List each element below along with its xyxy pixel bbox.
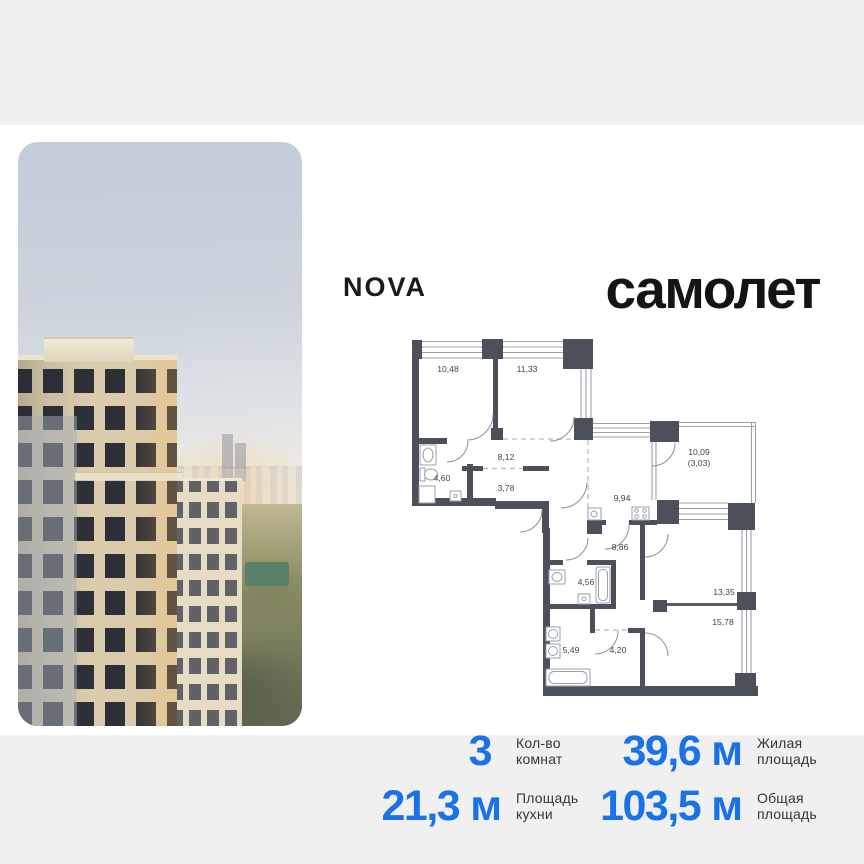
nova-logo: NOVA bbox=[343, 274, 427, 301]
room-area-label: 10,09 bbox=[688, 447, 710, 457]
stat-value: 39,6м bbox=[583, 730, 743, 773]
terrace-line bbox=[75, 472, 183, 481]
stat-label: Кол-во комнат bbox=[516, 735, 563, 767]
listing-card: NOVA самолет bbox=[0, 125, 864, 735]
kitchen-fixtures bbox=[588, 507, 649, 520]
room-area-label: 4,60 bbox=[434, 473, 451, 483]
room-area-label: 9,94 bbox=[614, 493, 631, 503]
stat-value: 103,5м bbox=[583, 785, 743, 828]
gray-brick-section bbox=[18, 416, 77, 726]
listing-image: NOVA самолет bbox=[0, 0, 864, 864]
stat-kitchen-area: 21,3м Площадь кухни bbox=[347, 780, 578, 832]
room-area-label: 4,56 bbox=[578, 577, 595, 587]
stat-label: Жилая площадь bbox=[757, 735, 817, 767]
stat-living-area: 39,6м Жилая площадь bbox=[583, 725, 817, 777]
stat-total-area: 103,5м Общая площадь bbox=[583, 780, 817, 832]
room-area-label: 10,48 bbox=[437, 364, 459, 374]
room-area-label: (3,03) bbox=[688, 458, 711, 468]
room-area-label: 13,35 bbox=[713, 587, 735, 597]
room-area-label: 11,33 bbox=[517, 364, 538, 374]
room-area-label: 8,86 bbox=[612, 542, 629, 552]
samolet-logo: самолет bbox=[605, 262, 820, 317]
haze-overlay bbox=[160, 469, 302, 726]
room-area-label: 5,49 bbox=[563, 645, 580, 655]
building-photo bbox=[18, 142, 302, 726]
room-area-label: 8,12 bbox=[498, 452, 515, 462]
floor-plan: 10,48 11,33 8,12 4,60 3,78 9,94 10,09 (3… bbox=[400, 328, 762, 710]
room-area-label: 3,78 bbox=[498, 483, 515, 493]
stat-label: Общая площадь bbox=[757, 790, 817, 822]
stat-value: 3 bbox=[347, 730, 502, 773]
stat-label: Площадь кухни bbox=[516, 790, 578, 822]
room-area-label: 15,78 bbox=[712, 617, 734, 627]
stat-value: 21,3м bbox=[347, 785, 502, 828]
window bbox=[422, 342, 756, 674]
stat-room-count: 3 Кол-во комнат bbox=[347, 725, 563, 777]
room-area-label: 4,20 bbox=[610, 645, 627, 655]
penthouse-roof bbox=[44, 337, 135, 362]
